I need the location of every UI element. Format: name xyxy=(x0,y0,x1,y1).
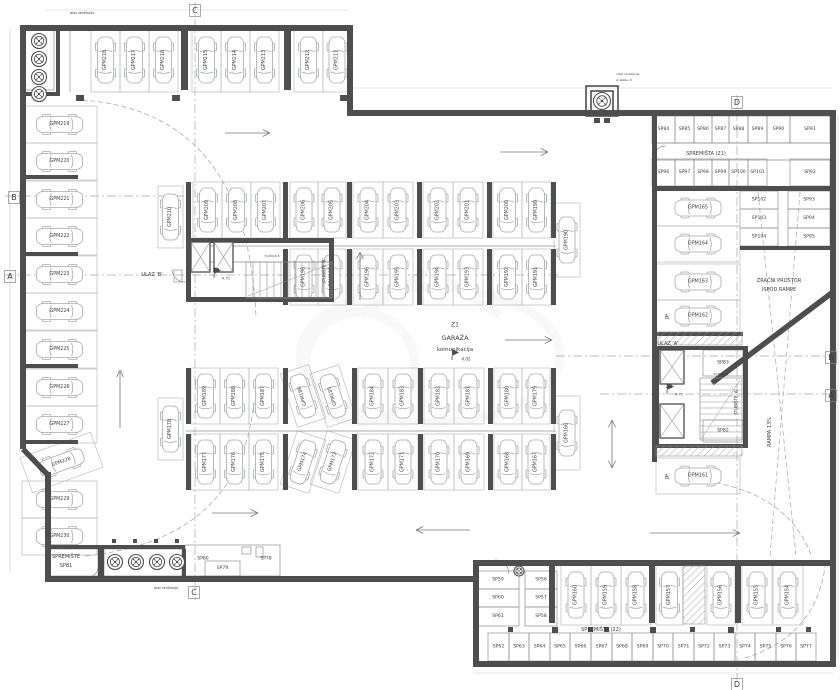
parking-stall-gpm191: GPM191 xyxy=(522,249,551,305)
parking-stall-gpm155: GPM155 xyxy=(742,565,772,625)
stall-label: GPM187 xyxy=(260,386,266,406)
ventilation-fan-icon xyxy=(32,87,47,102)
plan-label: ULAZ 'B' xyxy=(141,272,162,278)
ventilation-fan-icon xyxy=(129,555,144,570)
parking-stall-gpm199: GPM199 xyxy=(522,182,551,238)
storage-cell-label: SP63 xyxy=(513,644,525,650)
stall-label: GPM199 xyxy=(533,200,539,220)
wall xyxy=(418,368,423,424)
wall xyxy=(352,110,836,116)
parking-stall-gpm170: GPM170 xyxy=(424,434,454,490)
wall xyxy=(347,182,352,238)
wall xyxy=(283,368,288,424)
stall-label: GPM223 xyxy=(50,271,70,277)
stall-label: GPM165 xyxy=(688,205,708,211)
column xyxy=(508,627,513,632)
plan-label: SPREMIŠTA (21) xyxy=(686,150,726,157)
grid-marker-label: D xyxy=(734,680,740,689)
storage-cell-label: SP94 xyxy=(803,215,815,221)
elevator-icon xyxy=(660,404,684,438)
parking-stall-gpm212: GPM212 xyxy=(294,28,323,92)
stall-label: GPM201 xyxy=(465,200,471,220)
parking-stall-gpm160: GPM160 xyxy=(561,565,591,625)
stall-label: GPM157 xyxy=(666,585,672,605)
parking-stall-gpm219: GPM219 xyxy=(22,106,97,143)
column xyxy=(594,118,600,123)
wall xyxy=(487,249,492,305)
parking-stall-gpm207: GPM207 xyxy=(251,182,280,238)
stall-label: GPM163 xyxy=(688,279,708,285)
stall-label: GPM221 xyxy=(50,196,70,202)
parking-stall-gpm172: GPM172 xyxy=(358,434,388,490)
wheelchair-icon: ♿ xyxy=(664,473,670,481)
parking-stall-gpm227: GPM227 xyxy=(22,406,97,443)
parking-stall-gpm215: GPM215 xyxy=(192,28,221,92)
storage-cell-sp60: SP60 xyxy=(477,589,519,607)
stall-label: GPM206 xyxy=(301,200,307,220)
column xyxy=(650,627,656,633)
wall xyxy=(418,434,423,490)
storage-cell-sp68: SP68 xyxy=(612,633,632,661)
storage-cell-sp74: SP74 xyxy=(735,633,755,661)
storage-cell-label: SP95 xyxy=(803,234,815,240)
parking-stall-gpm166: GPM166 xyxy=(554,396,580,470)
storage-cell-sp72: SP72 xyxy=(694,633,714,661)
storage-cell-label: SP61 xyxy=(492,613,504,619)
parking-stall-gpm209: GPM209 xyxy=(193,182,222,238)
column xyxy=(604,118,610,123)
storage-cell-label: SP92 xyxy=(804,169,816,175)
storage-cell-label: SP100 xyxy=(731,169,746,175)
column xyxy=(172,95,180,101)
grid-marker-d-2: D xyxy=(732,97,743,109)
storage-cell-label: SP76 xyxy=(780,644,792,650)
direction-arrow-icon xyxy=(212,510,258,517)
storage-cell-sp89: SP89 xyxy=(748,116,767,143)
parking-stall-gpm161: GPM161♿ xyxy=(656,458,740,494)
elevator-icon xyxy=(191,242,210,272)
stall-label: GPM158 xyxy=(633,585,639,605)
parking-stall-gpm176: GPM176 xyxy=(220,434,249,490)
ventilation-fan-icon xyxy=(594,93,611,110)
stall-label: GPM162 xyxy=(688,313,708,319)
stall-label: GPM210 xyxy=(167,207,173,227)
stall-label: GPM195 xyxy=(395,267,401,287)
stall-label: GPM164 xyxy=(688,241,708,247)
wall xyxy=(186,238,191,302)
stall-label: GPM212 xyxy=(305,50,311,70)
wall xyxy=(283,249,288,305)
parking-stall-gpm173: GPM173 xyxy=(310,431,356,494)
parking-stall-gpm204: GPM204 xyxy=(353,182,383,238)
stall-label: GPM205 xyxy=(329,200,335,220)
storage-cell-label: SP66 xyxy=(575,644,587,650)
wall xyxy=(20,252,78,256)
wall xyxy=(551,182,556,238)
stall-label: GPM176 xyxy=(231,452,237,472)
stall-label: GPM178 xyxy=(167,419,173,439)
storage-cell-sp95: SP95 xyxy=(788,228,830,246)
parking-stall-gpm187: GPM187 xyxy=(249,368,278,424)
parking-stall-gpm182: GPM182 xyxy=(424,368,454,424)
column xyxy=(154,539,158,543)
stall-label: GPM180 xyxy=(505,386,511,406)
parking-stall-gpm208: GPM208 xyxy=(222,182,251,238)
stall-label: GPM181 xyxy=(466,386,472,406)
storage-cell-sp73: SP73 xyxy=(714,633,735,661)
storage-cell-sp65: SP65 xyxy=(550,633,570,661)
parking-stall-gpm213: GPM213 xyxy=(250,28,279,92)
storage-cell-sp87: SP87 xyxy=(712,116,729,143)
parking-stall-gpm220: GPM220 xyxy=(22,143,97,180)
wall xyxy=(551,434,556,490)
plan-label: SP81 xyxy=(60,563,73,569)
parking-stall-gpm205: GPM205 xyxy=(318,182,346,238)
plan-label: SPREMIŠTA (22) xyxy=(581,626,621,633)
storage-cell-label: SP85 xyxy=(679,126,691,132)
storage-cell-sp94: SP94 xyxy=(788,209,830,228)
wheelchair-icon: ♿ xyxy=(664,313,670,321)
plan-label: SP78 xyxy=(260,556,271,562)
direction-arrow-icon xyxy=(500,149,548,156)
walls-layer xyxy=(20,25,836,667)
storage-cell-label: SP97 xyxy=(679,169,691,175)
plan-label: iz etaže -5 xyxy=(616,78,632,82)
parking-stall-gpm221: GPM221 xyxy=(22,181,97,218)
stall-label: GPM161 xyxy=(688,473,708,479)
stall-label: GPM155 xyxy=(754,585,760,605)
wall xyxy=(56,28,60,94)
direction-arrow-icon xyxy=(225,130,270,137)
plan-label: 4.02 xyxy=(462,357,471,362)
direction-arrow-icon xyxy=(117,370,124,428)
storage-cell-sp67: SP67 xyxy=(591,633,612,661)
storage-cell-label: SP68 xyxy=(616,644,628,650)
direction-arrow-icon xyxy=(505,337,552,344)
storage-cell-label: SP99 xyxy=(715,169,727,175)
storage-cell-label: SP91 xyxy=(804,126,816,132)
parking-stall-gpm163: GPM163 xyxy=(656,264,740,300)
hatched-area xyxy=(683,566,705,624)
stall-label: GPM207 xyxy=(262,200,268,220)
grid-marker-label: B xyxy=(828,353,834,362)
plan-label: izlaz ventilacije xyxy=(70,11,94,15)
storage-cell-sp103: SP103 xyxy=(740,209,778,228)
storage-cell-sp64: SP64 xyxy=(529,633,550,661)
storage-cell-sp75: SP75 xyxy=(755,633,776,661)
parking-stall-gpm206: GPM206 xyxy=(290,182,318,238)
storage-cell-sp59: SP59 xyxy=(477,571,519,589)
parking-stall-gpm210: GPM210 xyxy=(158,186,183,248)
plan-label: 4.71 xyxy=(675,392,684,397)
plan-label: STUBIŠTE 'A' xyxy=(734,389,739,415)
storage-cell-label: SP82 xyxy=(717,428,729,434)
storage-cell-sp97: SP97 xyxy=(675,159,694,186)
stall-label: GPM215 xyxy=(203,50,209,70)
storage-cell-label: SP75 xyxy=(760,644,772,650)
column xyxy=(728,627,734,633)
parking-stall-gpm214: GPM214 xyxy=(221,28,250,92)
storage-cell-sp79: SP79 xyxy=(205,561,240,576)
storage-cell-sp76: SP76 xyxy=(776,633,796,661)
storage-cell-sp91: SP91 xyxy=(790,116,830,143)
wall xyxy=(48,545,102,549)
parking-stall-gpm175: GPM175 xyxy=(249,434,278,490)
storage-cell-label: SP104 xyxy=(752,234,767,240)
parking-stall-gpm216: GPM216 xyxy=(149,28,178,92)
stall-label: GPM170 xyxy=(436,452,442,472)
storage-cell-label: SP60 xyxy=(492,595,504,601)
stall-label: GPM172 xyxy=(370,452,376,472)
stall-label: GPM171 xyxy=(400,452,406,472)
column xyxy=(112,539,116,543)
ventilation-fan-icon xyxy=(170,555,185,570)
wall xyxy=(98,545,102,576)
parking-stall-gpm167: GPM167 xyxy=(522,434,550,490)
parking-stall-gpm158: GPM158 xyxy=(621,565,651,625)
plan-label: SP80 xyxy=(197,556,208,562)
direction-arrow-icon xyxy=(609,420,616,468)
stall-label: GPM168 xyxy=(505,452,511,472)
stall-label: GPM156 xyxy=(718,585,724,605)
stall-label: GPM183 xyxy=(400,386,406,406)
storage-cell-label: SP93 xyxy=(803,197,815,203)
storage-cell-label: SP77 xyxy=(800,644,812,650)
grid-marker-label: A xyxy=(7,272,13,281)
storage-cell-sp70: SP70 xyxy=(653,633,673,661)
storage-cell-label: SP96 xyxy=(658,169,670,175)
plan-label: STUBIŠTE 'B' xyxy=(322,258,327,284)
wall xyxy=(473,661,836,667)
stall-label: GPM192 xyxy=(504,267,510,287)
stall-label: GPM175 xyxy=(260,452,266,472)
storage-cell-sp88: SP88 xyxy=(729,116,748,143)
stall-label: GPM225 xyxy=(50,346,70,352)
stall-label: GPM189 xyxy=(202,386,208,406)
storage-cell-label: SP71 xyxy=(678,644,690,650)
parking-stall-gpm223: GPM223 xyxy=(22,256,97,293)
plan-canvas: SP84SP85SP86SP87SP88SP89SP90SP91SP96SP97… xyxy=(0,0,840,690)
wall xyxy=(487,182,492,238)
wall xyxy=(473,560,479,667)
stall-label: GPM211 xyxy=(334,50,340,70)
elevator-icon xyxy=(660,350,684,384)
parking-stall-gpm226: GPM226 xyxy=(22,369,97,406)
stall-label: GPM222 xyxy=(50,233,70,239)
wall xyxy=(652,113,657,188)
parking-stall-gpm222: GPM222 xyxy=(22,218,97,255)
wall xyxy=(551,249,556,305)
wall xyxy=(417,249,422,305)
parking-stall-gpm202: GPM202 xyxy=(423,182,453,238)
parking-stall-gpm225: GPM225 xyxy=(22,331,97,368)
stall-label: GPM230 xyxy=(50,533,70,539)
parking-stall-gpm168: GPM168 xyxy=(494,434,522,490)
storage-cell-label: SP86 xyxy=(697,126,709,132)
storage-cell-label: SP59 xyxy=(492,577,504,583)
wall xyxy=(352,368,357,424)
wall xyxy=(284,28,291,90)
column xyxy=(806,627,811,632)
wall xyxy=(20,364,78,368)
plan-label: Z2 xyxy=(666,384,673,390)
storage-cell-label: SP88 xyxy=(733,126,745,132)
plan-label: izlaz ventilacije xyxy=(154,586,178,590)
direction-arrow-icon xyxy=(416,527,470,534)
storage-cell-label: SP101 xyxy=(750,169,765,175)
stall-label: GPM203 xyxy=(395,200,401,220)
parking-stall-gpm201: GPM201 xyxy=(453,182,483,238)
stall-label: GPM216 xyxy=(160,50,166,70)
storage-cell-sp61: SP61 xyxy=(477,607,519,626)
storage-cell-sp69: SP69 xyxy=(632,633,653,661)
stall-label: GPM208 xyxy=(233,200,239,220)
storage-cell-label: SP83 xyxy=(717,360,729,366)
stall-label: GPM213 xyxy=(261,50,267,70)
grid-marker-c-0: C xyxy=(190,5,201,17)
grid-marker-label: C xyxy=(192,6,198,15)
storage-cell-sp77: SP77 xyxy=(796,633,816,661)
grid-marker-c-1: C xyxy=(189,587,200,599)
storage-cell-label: SP74 xyxy=(739,644,751,650)
ventilation-fan-icon xyxy=(32,70,47,85)
storage-cell-label: SP84 xyxy=(658,126,670,132)
wall xyxy=(655,346,659,448)
room-outline xyxy=(242,547,251,554)
storage-cell-sp100: SP100 xyxy=(729,159,748,186)
storage-cell-sp92: SP92 xyxy=(790,159,830,186)
stairs-icon xyxy=(246,262,332,298)
storage-cell-label: SP103 xyxy=(752,215,767,221)
hatched-area xyxy=(656,446,742,456)
parking-stall-gpm218: GPM218 xyxy=(91,28,120,92)
stall-label: GPM154 xyxy=(785,585,791,605)
parking-stall-gpm229: GPM229 xyxy=(22,481,97,518)
stall-label: GPM177 xyxy=(202,452,208,472)
grid-marker-label: D xyxy=(734,98,740,107)
wall xyxy=(20,175,78,179)
wall xyxy=(652,186,832,191)
storage-cell-sp98: SP98 xyxy=(694,159,712,186)
storage-cell-label: SP64 xyxy=(534,644,546,650)
parking-stall-gpm230: GPM230 xyxy=(22,518,97,555)
stall-label: GPM209 xyxy=(204,200,210,220)
storage-cell-label: SP79 xyxy=(217,565,229,571)
storage-cell-sp71: SP71 xyxy=(673,633,694,661)
plan-label: ISPOD RAMPE xyxy=(762,287,796,293)
storage-cell-label: SP98 xyxy=(697,169,709,175)
stall-label: GPM202 xyxy=(435,200,441,220)
grid-marker-label: C xyxy=(191,588,197,597)
stall-label: GPM194 xyxy=(435,267,441,287)
parking-stall-gpm156: GPM156 xyxy=(707,565,735,625)
wall xyxy=(186,368,191,424)
stall-label: GPM167 xyxy=(533,452,539,472)
parking-stall-gpm178: GPM178 xyxy=(158,398,183,460)
parking-stall-gpm162: GPM162♿ xyxy=(656,300,740,332)
parking-stall-gpm159: GPM159 xyxy=(591,565,621,625)
stall-label: GPM166 xyxy=(564,423,570,443)
stall-label: GPM214 xyxy=(232,50,238,70)
parking-stall-gpm169: GPM169 xyxy=(454,434,484,490)
column xyxy=(552,627,558,633)
parking-stall-gpm224: GPM224 xyxy=(22,293,97,330)
stall-label: GPM217 xyxy=(131,50,137,70)
storage-cell-sp99: SP99 xyxy=(712,159,729,186)
storage-cell-label: SP62 xyxy=(493,644,505,650)
wall xyxy=(649,563,655,623)
storage-cell-sp102: SP102 xyxy=(740,191,778,209)
wall xyxy=(549,563,555,623)
stall-label: GPM218 xyxy=(102,50,108,70)
ventilation-fan-icon xyxy=(514,566,524,576)
stall-label: GPM226 xyxy=(50,384,70,390)
column xyxy=(340,95,348,101)
wall xyxy=(735,563,741,623)
direction-arrow-icon xyxy=(650,530,740,537)
plan-label: ZRAČNI PROSTOR xyxy=(757,277,802,284)
column xyxy=(175,539,179,543)
stall-label: GPM196 xyxy=(365,267,371,287)
wall xyxy=(20,25,26,449)
storage-cell-label: SP90 xyxy=(773,126,785,132)
wall xyxy=(45,576,475,582)
parking-stall-gpm198: GPM198 xyxy=(290,249,318,305)
plan-label: 4.71 xyxy=(222,276,231,281)
parking-stall-gpm165: GPM165 xyxy=(656,190,740,226)
stall-label: GPM229 xyxy=(50,496,70,502)
wall xyxy=(283,434,288,490)
storage-cell-label: SP102 xyxy=(752,197,767,203)
stall-label: GPM198 xyxy=(301,267,307,287)
stall-label: GPM190 xyxy=(564,230,570,250)
parking-stall-gpm157: GPM157 xyxy=(656,565,683,625)
stall-label: GPM220 xyxy=(50,158,70,164)
stall-label: GPM159 xyxy=(603,585,609,605)
stall-label: GPM184 xyxy=(370,386,376,406)
plan-label: komunikacija xyxy=(437,347,473,353)
storage-cell-sp101: SP101 xyxy=(748,159,767,186)
storage-cell-label: SP57 xyxy=(535,595,547,601)
parking-stall-gpm211: GPM211 xyxy=(323,28,351,92)
parking-stall-gpm177: GPM177 xyxy=(191,434,220,490)
parking-stall-gpm154: GPM154 xyxy=(773,565,803,625)
stall-label: GPM188 xyxy=(231,386,237,406)
stall-label: GPM160 xyxy=(573,585,579,605)
plan-label: Z1 xyxy=(451,322,459,329)
storage-cell-label: SP72 xyxy=(698,644,710,650)
wall xyxy=(352,434,357,490)
wall xyxy=(283,182,288,238)
wall xyxy=(20,440,78,444)
storage-cell-label: SP69 xyxy=(637,644,649,650)
wall xyxy=(45,472,51,582)
wall xyxy=(830,110,836,667)
garage-floor-plan-sheet: SP84SP85SP86SP87SP88SP89SP90SP91SP96SP97… xyxy=(0,0,840,690)
wall xyxy=(186,182,191,238)
parking-stalls-layer: GPM218GPM217GPM216GPM215GPM214GPM213GPM2… xyxy=(20,28,803,625)
column xyxy=(690,627,695,632)
storage-cell-sp85: SP85 xyxy=(675,116,694,143)
room-outline xyxy=(256,547,263,557)
storage-cell-sp90: SP90 xyxy=(767,116,790,143)
storage-cell-sp93: SP93 xyxy=(788,191,830,209)
storage-cell-sp62: SP62 xyxy=(488,633,509,661)
plan-label: 7x30/16.5 xyxy=(713,372,728,376)
stall-label: GPM169 xyxy=(466,452,472,472)
storage-cell-sp104: SP104 xyxy=(740,228,778,246)
plan-label: SPREMIŠTE xyxy=(52,553,80,560)
